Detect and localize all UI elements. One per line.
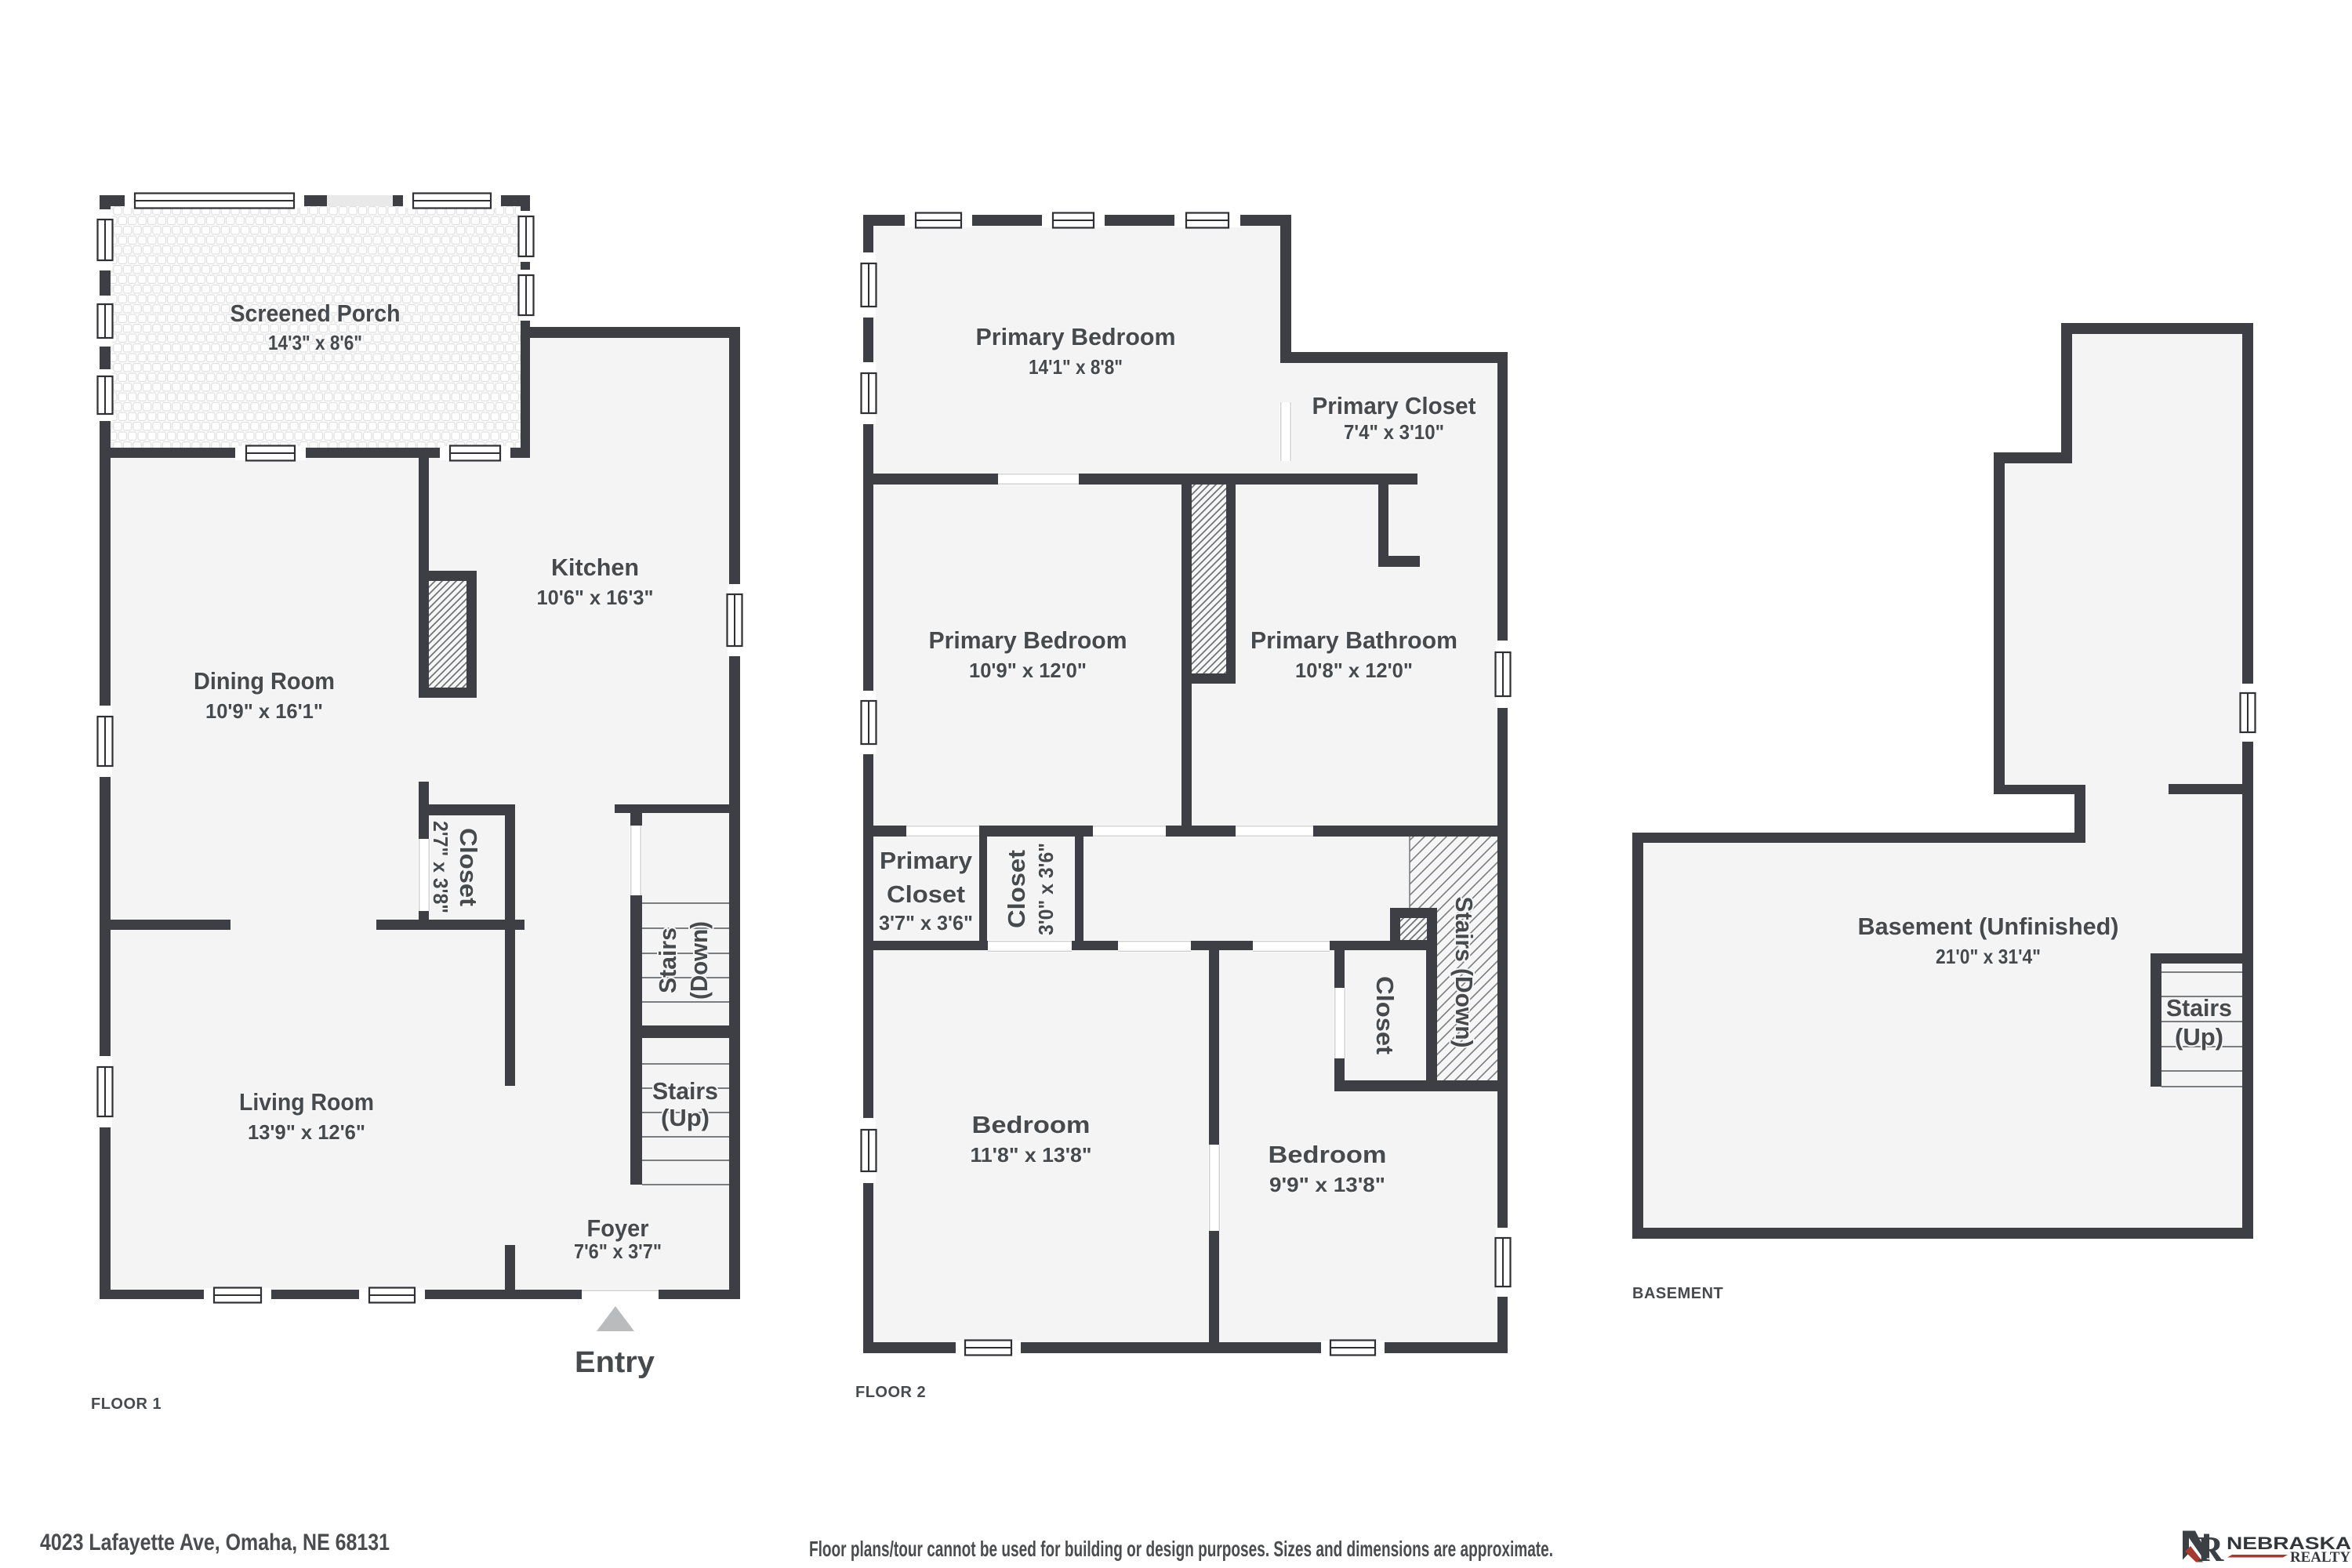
svg-text:14'1" x 8'8": 14'1" x 8'8" bbox=[1029, 355, 1123, 379]
svg-text:10'6" x 16'3": 10'6" x 16'3" bbox=[537, 586, 654, 609]
svg-text:7'4" x 3'10": 7'4" x 3'10" bbox=[1344, 420, 1444, 444]
svg-text:Closet: Closet bbox=[455, 828, 482, 906]
svg-text:Bedroom: Bedroom bbox=[1269, 1141, 1387, 1168]
svg-text:4023 Lafayette Ave, Omaha, NE: 4023 Lafayette Ave, Omaha, NE 68131 bbox=[40, 1530, 390, 1555]
svg-text:(Up): (Up) bbox=[661, 1104, 710, 1131]
svg-text:7'6" x 3'7": 7'6" x 3'7" bbox=[574, 1240, 662, 1263]
svg-text:R: R bbox=[2198, 1529, 2224, 1568]
svg-text:Stairs (Down): Stairs (Down) bbox=[1450, 897, 1478, 1048]
svg-text:Primary Bathroom: Primary Bathroom bbox=[1250, 626, 1457, 654]
svg-text:9'9" x 13'8": 9'9" x 13'8" bbox=[1269, 1173, 1385, 1196]
svg-text:Primary: Primary bbox=[880, 847, 973, 874]
svg-text:Stairs: Stairs bbox=[652, 1077, 718, 1105]
svg-text:11'8" x 13'8": 11'8" x 13'8" bbox=[971, 1143, 1092, 1167]
svg-text:(Down): (Down) bbox=[685, 921, 713, 1000]
svg-text:Closet: Closet bbox=[1003, 850, 1030, 928]
svg-text:Primary Bedroom: Primary Bedroom bbox=[976, 323, 1176, 350]
svg-text:REALTY: REALTY bbox=[2290, 1549, 2350, 1566]
svg-text:Basement (Unfinished): Basement (Unfinished) bbox=[1858, 913, 2119, 940]
svg-text:Floor plans/tour cannot be use: Floor plans/tour cannot be used for buil… bbox=[809, 1537, 1553, 1561]
svg-text:Screened Porch: Screened Porch bbox=[230, 299, 401, 327]
svg-text:Entry: Entry bbox=[575, 1346, 655, 1379]
svg-text:Primary Closet: Primary Closet bbox=[1312, 392, 1476, 419]
svg-text:BASEMENT: BASEMENT bbox=[1632, 1285, 1723, 1302]
svg-text:Dining Room: Dining Room bbox=[194, 667, 335, 695]
svg-text:(Up): (Up) bbox=[2175, 1023, 2223, 1051]
svg-text:14'3" x 8'6": 14'3" x 8'6" bbox=[268, 331, 362, 354]
svg-text:13'9" x 12'6": 13'9" x 12'6" bbox=[248, 1120, 365, 1144]
svg-text:3'0" x 3'6": 3'0" x 3'6" bbox=[1034, 843, 1058, 935]
svg-text:21'0" x 31'4": 21'0" x 31'4" bbox=[1936, 945, 2041, 968]
svg-text:3'7" x 3'6": 3'7" x 3'6" bbox=[879, 911, 973, 935]
svg-text:Foyer: Foyer bbox=[587, 1214, 649, 1242]
svg-text:Closet: Closet bbox=[887, 880, 965, 908]
svg-text:FLOOR 1: FLOOR 1 bbox=[91, 1396, 162, 1413]
svg-text:Living Room: Living Room bbox=[239, 1088, 374, 1116]
svg-text:10'9" x 12'0": 10'9" x 12'0" bbox=[969, 659, 1087, 682]
svg-text:10'9" x 16'1": 10'9" x 16'1" bbox=[205, 699, 323, 723]
svg-text:Stairs: Stairs bbox=[654, 927, 681, 993]
svg-text:Bedroom: Bedroom bbox=[972, 1111, 1091, 1138]
svg-text:2'7" x 3'8": 2'7" x 3'8" bbox=[429, 821, 452, 913]
svg-text:Stairs: Stairs bbox=[2166, 994, 2232, 1022]
svg-text:FLOOR 2: FLOOR 2 bbox=[855, 1384, 926, 1401]
svg-text:Kitchen: Kitchen bbox=[551, 554, 639, 581]
svg-text:10'8" x 12'0": 10'8" x 12'0" bbox=[1295, 659, 1413, 682]
svg-text:Closet: Closet bbox=[1371, 976, 1399, 1054]
svg-text:Primary Bedroom: Primary Bedroom bbox=[929, 626, 1127, 654]
